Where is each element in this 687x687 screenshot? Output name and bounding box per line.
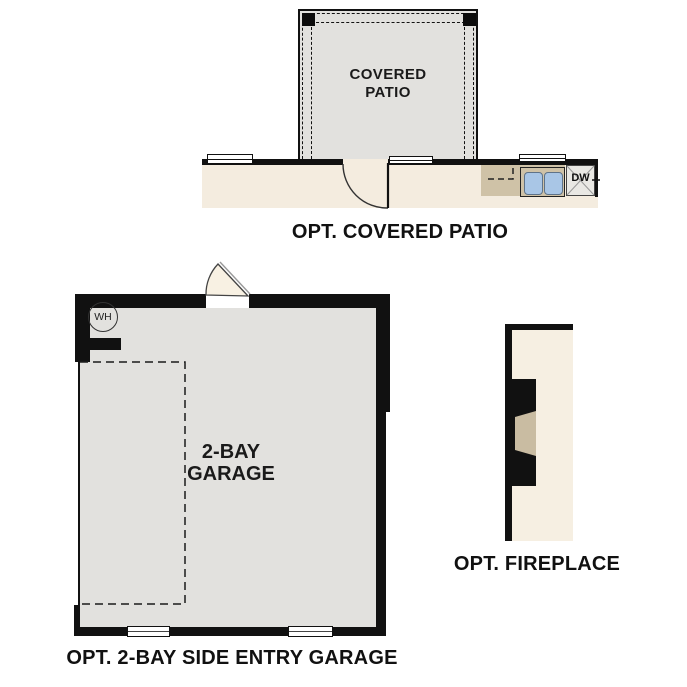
- garage-right-wall-lower: [376, 412, 386, 636]
- garage-room-label-line2: GARAGE: [131, 463, 331, 485]
- window-left: [207, 154, 253, 164]
- water-heater-circle: WH: [88, 302, 118, 332]
- patio-post-left: [302, 13, 315, 26]
- window-center: [389, 156, 433, 164]
- fireplace-caption: OPT. FIREPLACE: [437, 553, 637, 576]
- water-heater-label: WH: [94, 311, 112, 323]
- garage-room-label: 2-BAY GARAGE: [131, 441, 331, 485]
- sink-basin-right: [544, 172, 563, 195]
- garage-left-wall-corner: [74, 605, 80, 636]
- garage-left-wall-thin: [78, 362, 80, 605]
- fireplace-left-wall: [505, 324, 512, 541]
- garage-room-label-line1: 2-BAY: [131, 441, 331, 463]
- garage-entry-door-swing: [206, 264, 248, 296]
- dishwasher-label: DW: [566, 172, 595, 184]
- fireplace-top-bar: [505, 324, 573, 330]
- sink-basin-left: [524, 172, 543, 195]
- wall-end-cap: [595, 159, 598, 197]
- garage-caption: OPT. 2-BAY SIDE ENTRY GARAGE: [20, 647, 444, 670]
- garage-vent-left: [127, 626, 170, 637]
- garage-right-wall-upper: [376, 294, 390, 412]
- patio-post-right: [463, 13, 476, 26]
- water-heater-alcove-wall: [75, 338, 121, 350]
- garage-entry-door-opening: [206, 294, 249, 308]
- patio-room-label-line1: COVERED: [298, 66, 478, 84]
- covered-patio-caption: OPT. COVERED PATIO: [202, 221, 598, 244]
- garage-left-wall-upper: [75, 294, 90, 362]
- garage-vent-right: [288, 626, 333, 637]
- garage-door-leaf-shadow: [220, 262, 250, 294]
- patio-room-label-line2: PATIO: [298, 84, 478, 102]
- floorplan-options-sheet: COVERED PATIO DW OPT. COVERED PATIO WH 2…: [0, 0, 687, 687]
- window-over-sink: [519, 154, 566, 162]
- garage-bottom-wall: [74, 627, 386, 636]
- fireplace-firebox: [512, 379, 536, 486]
- patio-room-label: COVERED PATIO: [298, 66, 478, 102]
